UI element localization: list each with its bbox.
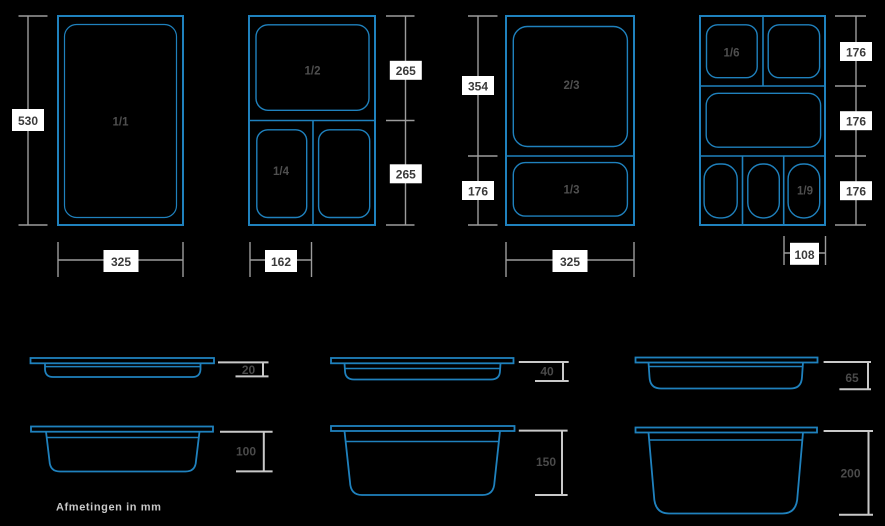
svg-text:1/2: 1/2 bbox=[305, 66, 321, 78]
svg-text:100: 100 bbox=[236, 444, 256, 458]
svg-text:176: 176 bbox=[846, 46, 866, 60]
svg-text:65: 65 bbox=[845, 371, 859, 385]
svg-text:Afmetingen in mm: Afmetingen in mm bbox=[56, 502, 162, 514]
svg-text:354: 354 bbox=[468, 80, 488, 94]
svg-text:108: 108 bbox=[794, 248, 814, 262]
svg-text:325: 325 bbox=[560, 255, 580, 269]
svg-text:530: 530 bbox=[18, 114, 38, 128]
svg-text:1/6: 1/6 bbox=[724, 48, 740, 60]
svg-text:265: 265 bbox=[396, 168, 416, 182]
svg-text:150: 150 bbox=[536, 455, 556, 469]
svg-text:200: 200 bbox=[840, 467, 860, 481]
svg-text:176: 176 bbox=[846, 115, 866, 129]
svg-text:1/1: 1/1 bbox=[113, 117, 130, 129]
svg-text:1/9: 1/9 bbox=[797, 186, 813, 198]
svg-text:40: 40 bbox=[540, 365, 554, 379]
svg-text:176: 176 bbox=[846, 185, 866, 199]
svg-text:2/3: 2/3 bbox=[564, 80, 580, 92]
svg-text:176: 176 bbox=[468, 185, 488, 199]
svg-text:162: 162 bbox=[271, 255, 291, 269]
svg-text:1/3: 1/3 bbox=[564, 185, 580, 197]
svg-text:325: 325 bbox=[111, 255, 131, 269]
svg-text:265: 265 bbox=[396, 64, 416, 78]
svg-text:1/4: 1/4 bbox=[273, 166, 290, 178]
svg-text:20: 20 bbox=[242, 363, 256, 377]
